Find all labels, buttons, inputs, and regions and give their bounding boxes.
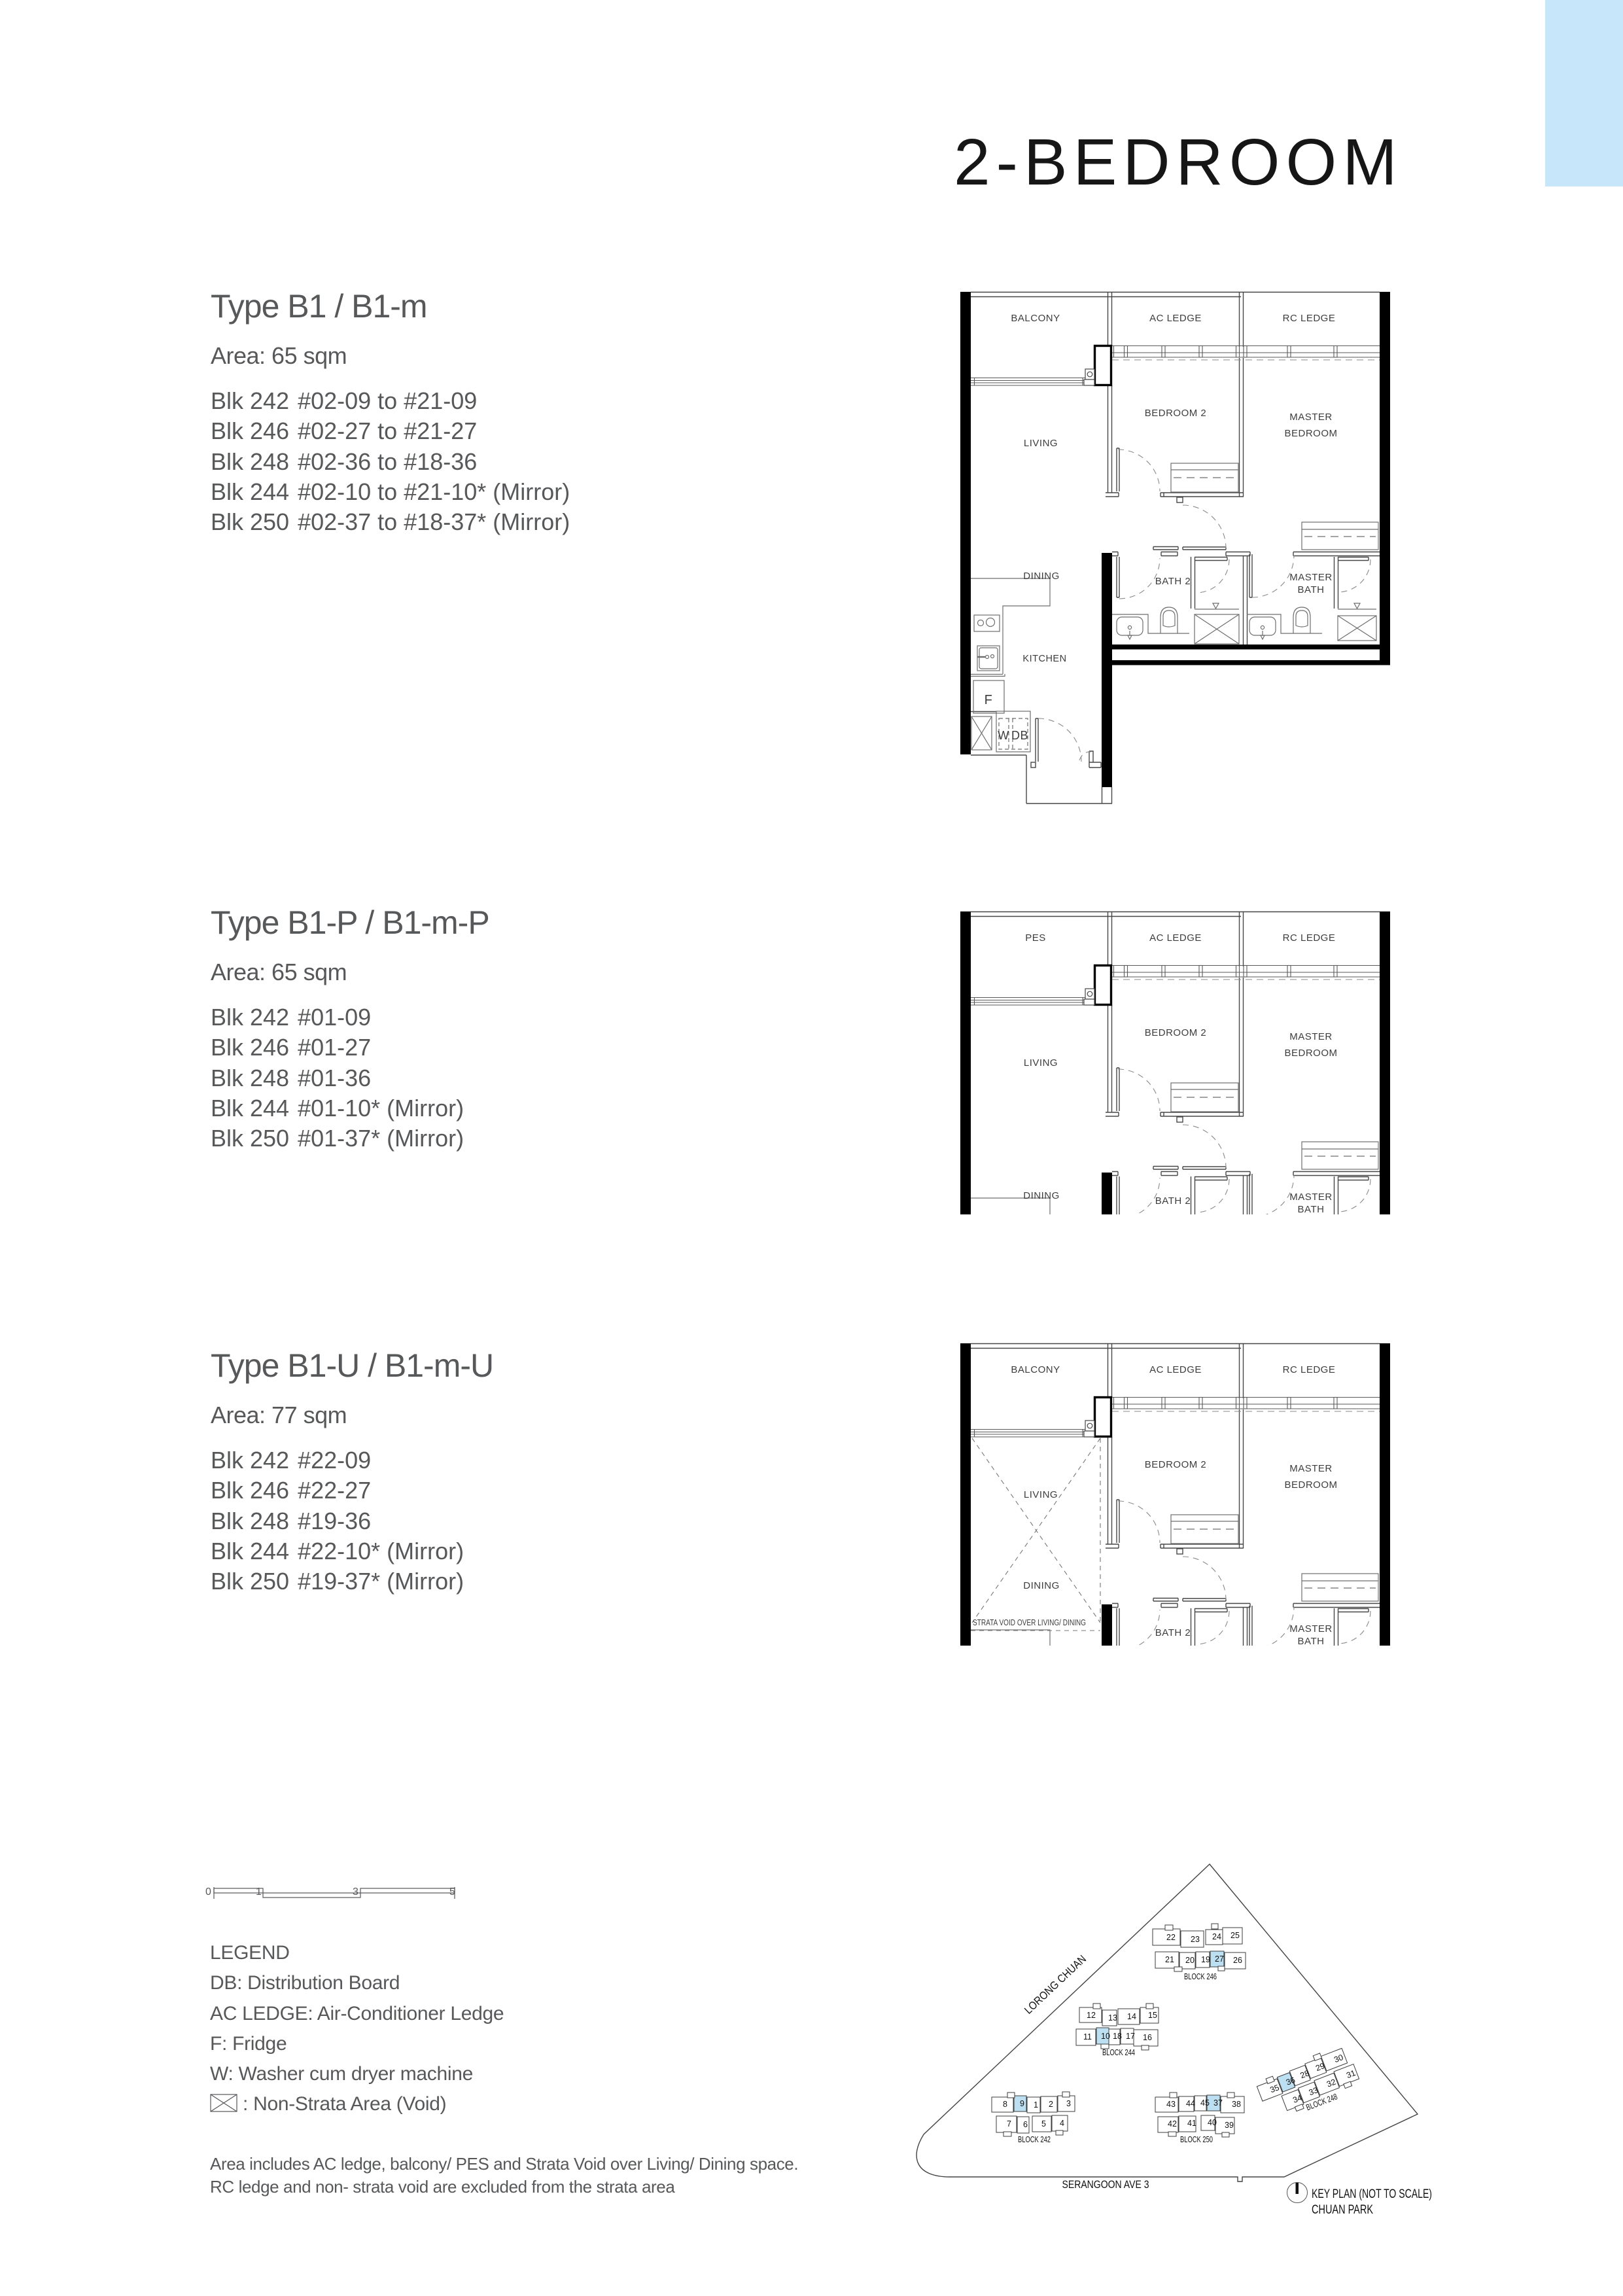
svg-text:1: 1 xyxy=(256,1886,262,1898)
svg-text:23: 23 xyxy=(1191,1935,1200,1944)
svg-text:27: 27 xyxy=(1215,1954,1224,1964)
svg-text:1: 1 xyxy=(1034,2100,1038,2110)
svg-text:15: 15 xyxy=(1148,2011,1157,2020)
svg-text:LORONG CHUAN: LORONG CHUAN xyxy=(1022,1952,1089,2016)
svg-text:0: 0 xyxy=(205,1886,211,1898)
svg-text:11: 11 xyxy=(1083,2032,1092,2041)
svg-text:19: 19 xyxy=(1201,1955,1210,1964)
svg-text:2: 2 xyxy=(1049,2100,1053,2109)
svg-text:38: 38 xyxy=(1232,2100,1241,2109)
svg-text:39: 39 xyxy=(1225,2121,1234,2130)
svg-text:25: 25 xyxy=(1230,1931,1240,1940)
svg-text:BLOCK 246: BLOCK 246 xyxy=(1184,1971,1217,1981)
svg-text:CHUAN PARK: CHUAN PARK xyxy=(1312,2203,1373,2217)
svg-text:BLOCK 250: BLOCK 250 xyxy=(1180,2134,1213,2144)
svg-text:14: 14 xyxy=(1127,2012,1136,2021)
svg-text:8: 8 xyxy=(1003,2100,1007,2109)
svg-text:KEY PLAN (NOT TO SCALE): KEY PLAN (NOT TO SCALE) xyxy=(1312,2187,1432,2201)
svg-text:21: 21 xyxy=(1165,1955,1174,1964)
svg-text:22: 22 xyxy=(1166,1933,1176,1942)
svg-text:42: 42 xyxy=(1168,2119,1177,2128)
svg-text:26: 26 xyxy=(1233,1956,1242,1965)
svg-text:45: 45 xyxy=(1200,2098,1210,2108)
svg-text:5: 5 xyxy=(449,1886,455,1898)
svg-text:4: 4 xyxy=(1060,2119,1064,2128)
svg-text:44: 44 xyxy=(1186,2099,1195,2108)
svg-text:SERANGOON AVE 3: SERANGOON AVE 3 xyxy=(1062,2179,1149,2191)
svg-text:12: 12 xyxy=(1087,2011,1096,2020)
svg-text:STRATA VOID OVER LIVING/ DININ: STRATA VOID OVER LIVING/ DINING xyxy=(973,1618,1086,1627)
svg-text:BLOCK 242: BLOCK 242 xyxy=(1018,2134,1051,2144)
svg-text:10: 10 xyxy=(1101,2032,1110,2041)
svg-text:BLOCK 244: BLOCK 244 xyxy=(1102,2047,1135,2057)
svg-text:7: 7 xyxy=(1007,2119,1011,2128)
svg-text:5: 5 xyxy=(1041,2119,1046,2128)
svg-text:13: 13 xyxy=(1108,2013,1117,2022)
svg-text:BALCONY: BALCONY xyxy=(1011,1364,1060,1375)
svg-text:DINING: DINING xyxy=(1023,571,1060,582)
svg-text:9: 9 xyxy=(1020,2099,1024,2108)
svg-text:BALCONY: BALCONY xyxy=(1011,313,1060,324)
svg-text:DINING: DINING xyxy=(1023,1580,1060,1591)
svg-text:6: 6 xyxy=(1023,2120,1028,2129)
svg-text:PES: PES xyxy=(1025,932,1046,944)
svg-text:DINING: DINING xyxy=(1023,1190,1060,1201)
svg-text:16: 16 xyxy=(1143,2033,1152,2042)
svg-text:40: 40 xyxy=(1208,2118,1217,2127)
svg-text:3: 3 xyxy=(1066,2099,1071,2108)
svg-text:43: 43 xyxy=(1166,2100,1176,2109)
svg-text:17: 17 xyxy=(1126,2032,1135,2041)
svg-text:37: 37 xyxy=(1213,2098,1223,2108)
svg-text:18: 18 xyxy=(1113,2032,1122,2041)
svg-text:24: 24 xyxy=(1212,1932,1221,1941)
svg-text:20: 20 xyxy=(1185,1956,1195,1965)
svg-text:41: 41 xyxy=(1187,2119,1196,2128)
svg-text:3: 3 xyxy=(353,1886,358,1898)
